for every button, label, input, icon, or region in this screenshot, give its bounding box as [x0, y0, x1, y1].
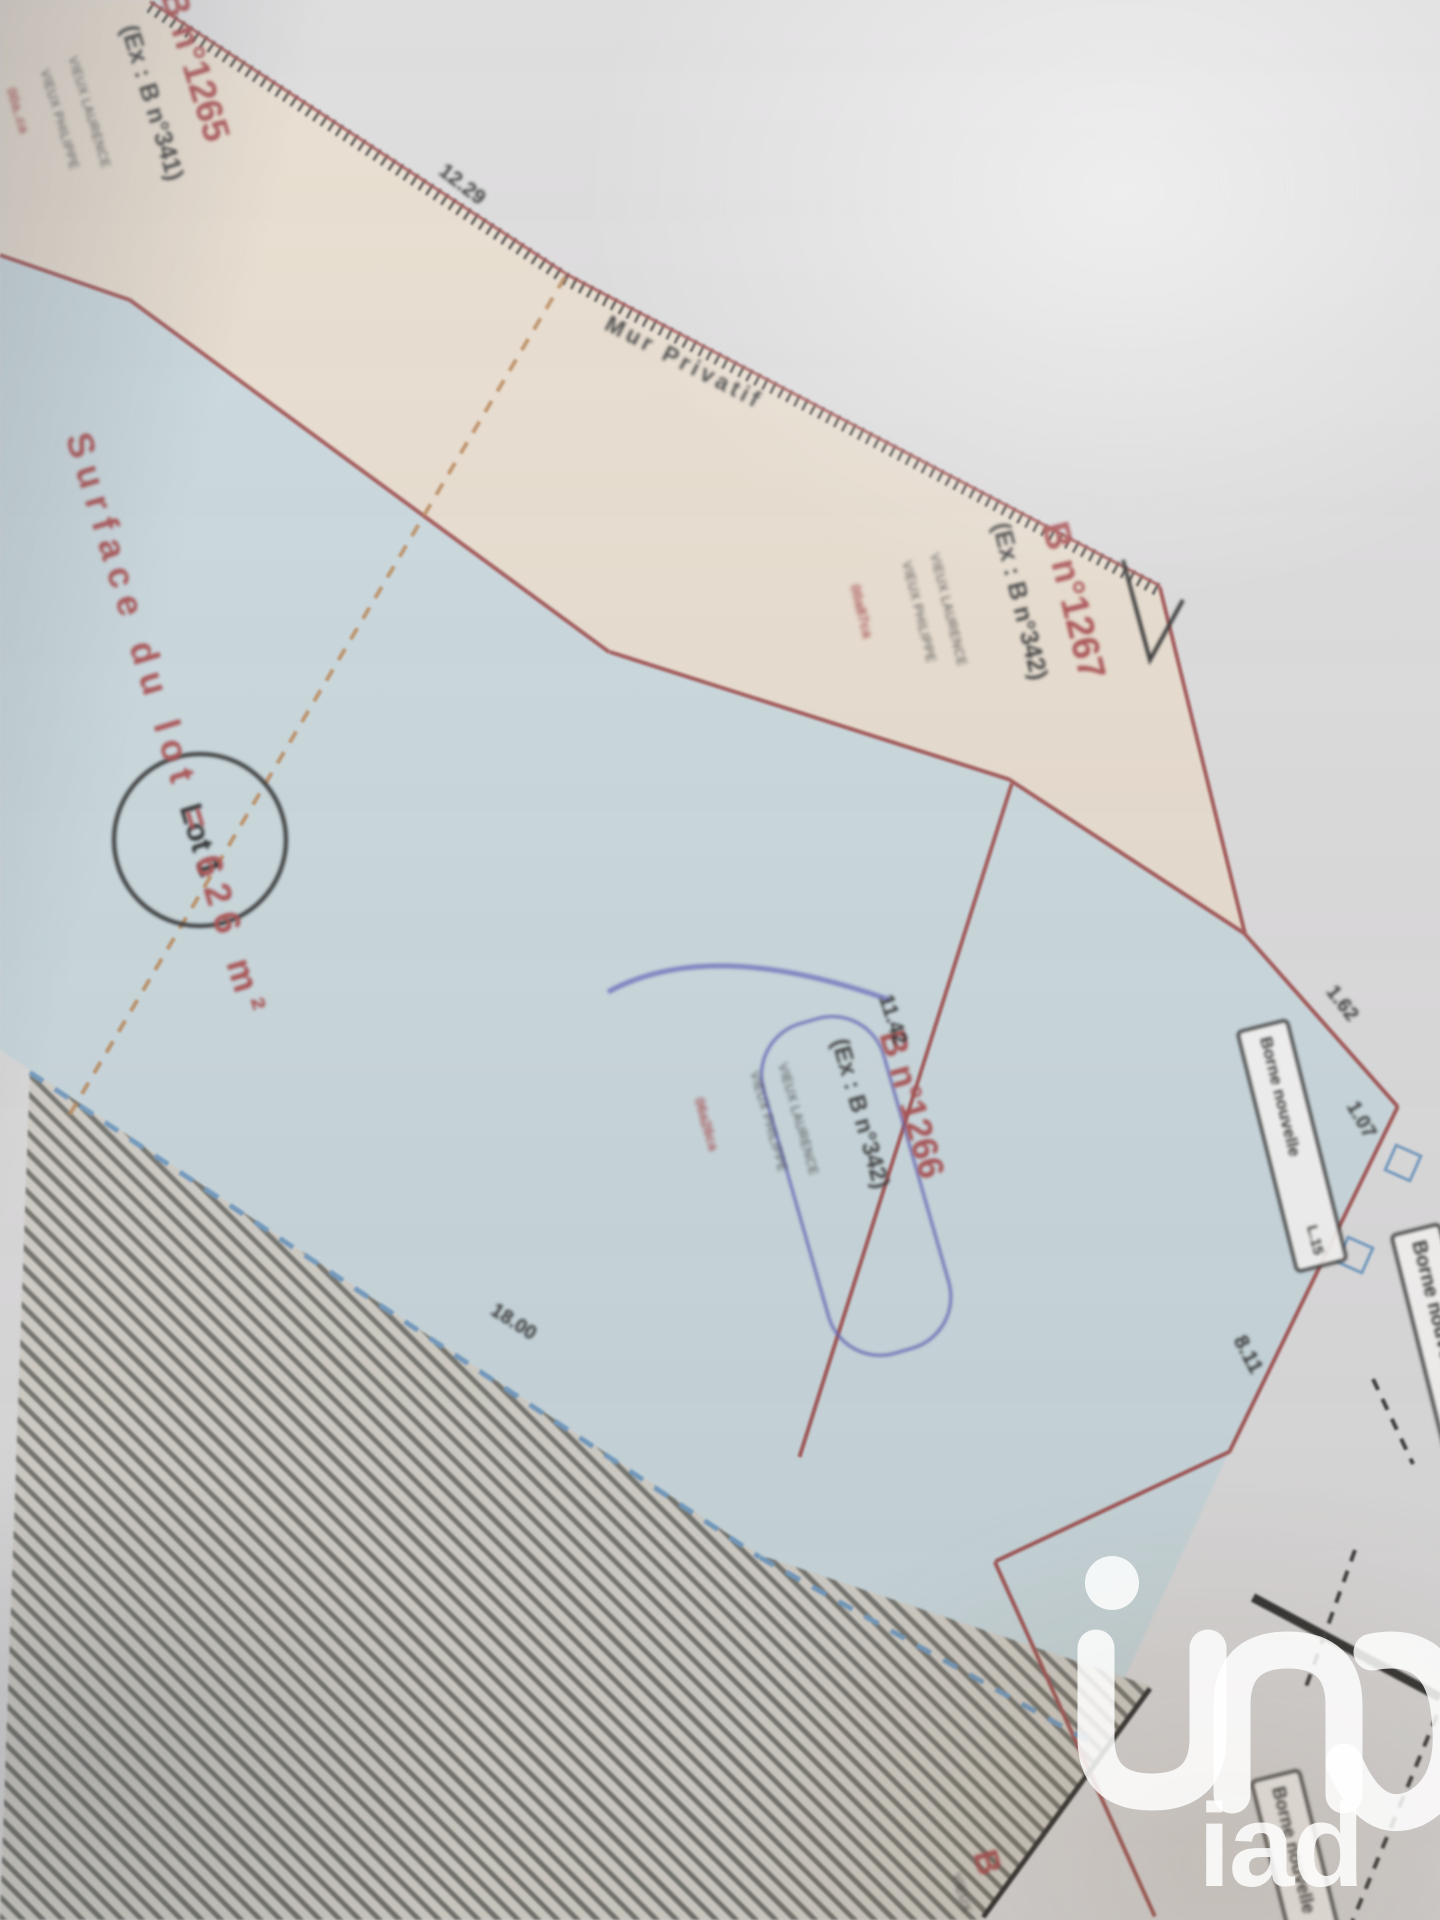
- borne-bottom-box: Borne nouvelle: [1250, 1768, 1349, 1920]
- pen-stroke-tail: [600, 930, 900, 1030]
- borne-l15-name: Borne nouvelle: [1255, 1035, 1304, 1159]
- borne-marker-square: [1383, 1143, 1423, 1183]
- survey-check-mark: [1118, 555, 1188, 670]
- borne-right-name: Borne nouvelle: [1407, 1238, 1440, 1384]
- borne-bottom-name: Borne nouvelle: [1268, 1784, 1320, 1915]
- borne-l15-point: L.15: [1304, 1223, 1328, 1256]
- plan-photo-layer: Lot 1 Surface du lot = 626 m² B n°1265 (…: [0, 0, 1440, 1920]
- building-dashed-line: [1350, 1714, 1439, 1920]
- building-dashed-line: [1371, 1378, 1415, 1465]
- dimension-label: 1.62: [1322, 982, 1362, 1025]
- borne-right-box: Borne nouvelle: [1390, 1222, 1440, 1477]
- building-wall-line: [1251, 1594, 1440, 1702]
- photographed-cadastral-plan: Lot 1 Surface du lot = 626 m² B n°1265 (…: [0, 0, 1440, 1920]
